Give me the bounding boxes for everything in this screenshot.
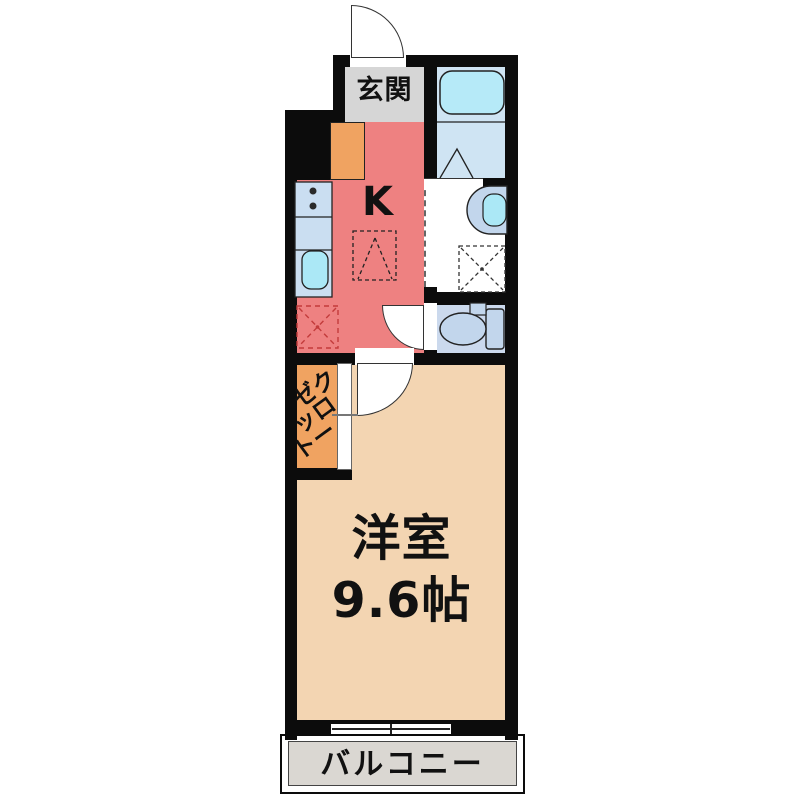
floor-plan: 玄関 K クロー ゼット 洋室 9.6帖 バルコニー <box>0 0 800 800</box>
stove-burner-icon <box>310 203 317 210</box>
closet-label-char: ト <box>288 431 322 466</box>
stove-burner-icon <box>310 188 317 195</box>
bath-folding-door-icon <box>440 149 473 178</box>
western-room-label: 洋室 <box>285 512 518 566</box>
toilet-cistern-box <box>470 303 486 315</box>
washbasin-bowl <box>483 194 506 226</box>
balcony-label: バルコニー <box>280 748 525 781</box>
bathtub <box>440 71 504 114</box>
fixtures-layer <box>0 0 800 800</box>
toilet-bowl <box>440 313 486 345</box>
refrigerator-space-dot <box>316 325 320 329</box>
western-room-size: 9.6帖 <box>285 574 518 628</box>
kitchen-sink <box>302 251 328 289</box>
genkan-label: 玄関 <box>345 76 424 106</box>
washing-machine-space-dot <box>480 267 484 271</box>
closet-label-left-column: ゼット <box>293 383 317 461</box>
toilet-tank <box>486 309 504 349</box>
kitchen-label: K <box>358 180 398 224</box>
kitchen-appliance-space-icon <box>353 231 396 280</box>
